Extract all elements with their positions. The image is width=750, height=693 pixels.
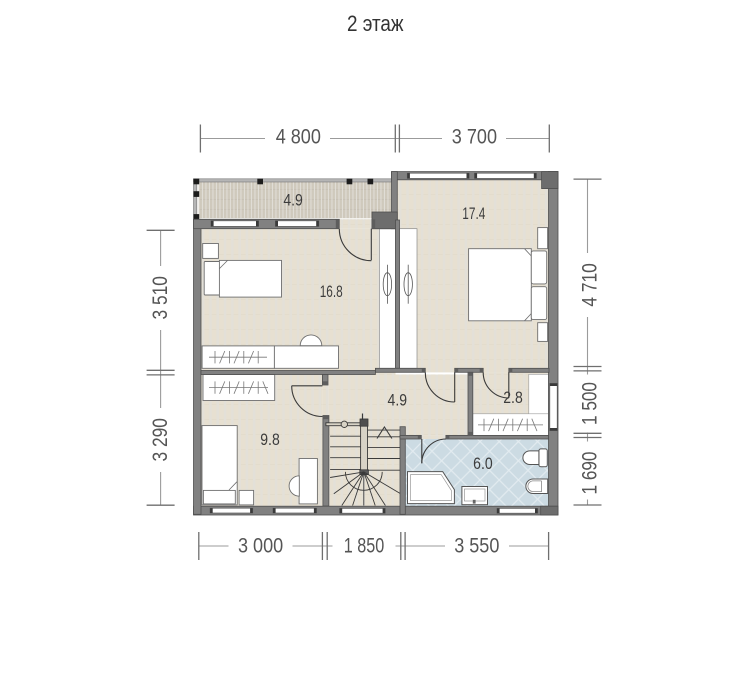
svg-text:3 700: 3 700 [452,125,497,148]
svg-text:4.9: 4.9 [283,191,303,209]
svg-text:4.9: 4.9 [388,392,408,410]
svg-text:3 550: 3 550 [454,535,499,558]
svg-text:2 этаж: 2 этаж [347,11,404,36]
svg-text:9.8: 9.8 [260,431,280,449]
svg-text:1 500: 1 500 [579,382,602,425]
svg-text:3 000: 3 000 [238,535,283,558]
svg-text:4 710: 4 710 [579,263,602,307]
svg-text:6.0: 6.0 [473,455,493,473]
svg-text:2.8: 2.8 [503,389,523,407]
svg-text:3 510: 3 510 [149,276,172,320]
svg-text:1 690: 1 690 [579,452,602,495]
svg-text:3 290: 3 290 [149,418,172,462]
svg-text:4 800: 4 800 [276,125,321,148]
svg-text:1 850: 1 850 [344,535,385,558]
svg-text:16.8: 16.8 [320,283,343,301]
svg-text:17.4: 17.4 [462,205,485,223]
